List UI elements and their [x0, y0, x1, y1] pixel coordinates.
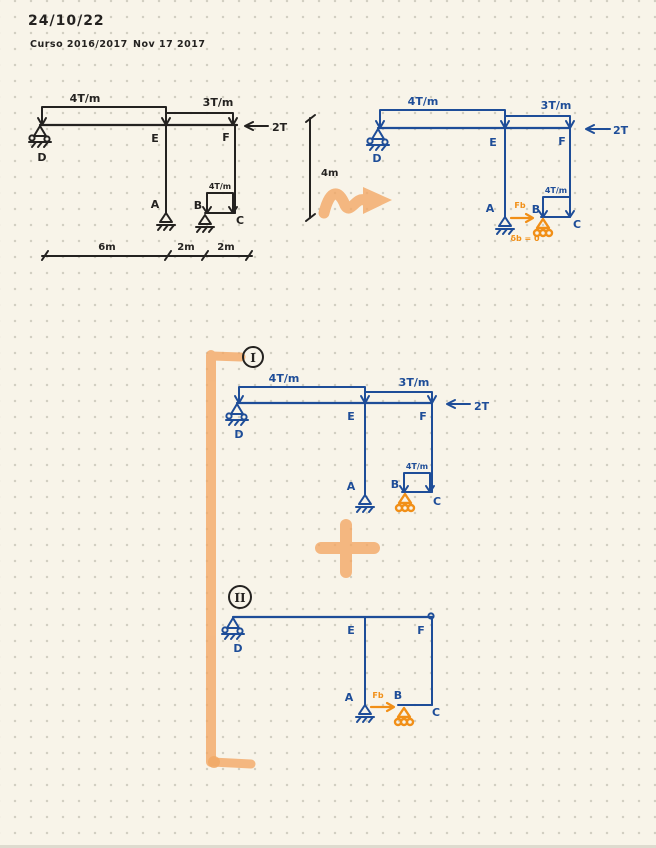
roller-support-B: [396, 494, 414, 511]
roller-support-B: [395, 708, 413, 725]
load-EF: 3T/m: [365, 376, 436, 403]
dim-label-6m: 6m: [98, 242, 115, 253]
dim-label-4m: 4m: [321, 168, 338, 179]
pin-support-D: [367, 129, 389, 150]
force-2T: 2T: [586, 124, 629, 137]
load-outline: [166, 113, 233, 124]
force-2T-label: 2T: [613, 124, 629, 137]
load-BC-label: 4T/m: [545, 186, 567, 195]
node-label-B: B: [394, 689, 402, 702]
node-label-E: E: [151, 132, 159, 145]
case1-diagram: 4T/m 3T/m 2T 4T/m D E F A B C: [226, 372, 490, 512]
original-structure-diagram: 4T/m 3T/m 2T 4T/m D E F A B C: [29, 92, 338, 260]
load-DE: 4T/m: [235, 372, 369, 403]
dim-label-2m-EB: 2m: [177, 242, 194, 253]
load-BC: 4T/m: [203, 182, 237, 213]
node-label-C: C: [236, 214, 244, 227]
load-DE: 4T/m: [38, 92, 170, 125]
load-outline: [543, 197, 570, 216]
released-structure-diagram: 4T/m 3T/m 2T 4T/m D E F A B C: [367, 95, 629, 234]
node-label-A: A: [347, 480, 356, 493]
pin-support-D: [29, 126, 51, 147]
pin-support-D: [222, 618, 244, 639]
node-label-A: A: [486, 202, 495, 215]
load-outline: [505, 116, 570, 127]
node-label-E: E: [489, 136, 497, 149]
node-label-D: D: [372, 152, 381, 165]
case2-numeral: II: [234, 591, 246, 605]
highlighter-bracket-blob: [208, 756, 220, 768]
case2-diagram: D E F A B C: [222, 613, 440, 722]
dimension-horizontal: 6m 2m 2m: [42, 242, 252, 260]
redundant-force-label: Fb: [514, 201, 525, 210]
node-label-C: C: [432, 706, 440, 719]
load-DE: 4T/m: [376, 95, 509, 128]
load-EF: 3T/m: [505, 99, 574, 128]
node-label-F: F: [222, 131, 230, 144]
highlighter-transform-arrowhead: [363, 187, 392, 214]
header: 24/10/22 Curso 2016/2017 Nov 17 2017: [28, 13, 205, 50]
case2-badge: II: [229, 586, 251, 608]
pin-support-A: [496, 217, 514, 234]
node-label-B: B: [194, 199, 202, 212]
load-DE-label: 4T/m: [269, 372, 300, 385]
node-label-D: D: [234, 428, 243, 441]
case1-numeral: I: [250, 351, 256, 365]
pin-support-A: [356, 495, 374, 512]
force-2T: 2T: [245, 121, 288, 134]
load-EF: 3T/m: [166, 96, 237, 125]
node-label-C: C: [433, 495, 441, 508]
node-label-B: B: [532, 203, 540, 216]
load-outline: [365, 392, 432, 402]
load-outline: [207, 193, 233, 212]
pin-support-D: [226, 404, 248, 425]
dim-label-2m-BC: 2m: [217, 242, 234, 253]
load-EF-label: 3T/m: [203, 96, 234, 109]
case1-badge: I: [243, 347, 263, 367]
load-outline: [404, 473, 430, 491]
sketch-canvas: 24/10/22 Curso 2016/2017 Nov 17 2017 4T/…: [0, 0, 656, 848]
node-label-B: B: [391, 478, 399, 491]
pin-support-A: [157, 213, 175, 230]
header-date: 24/10/22: [28, 13, 105, 29]
force-2T-label: 2T: [272, 121, 288, 134]
node-label-F: F: [417, 624, 425, 637]
node-label-F: F: [558, 135, 566, 148]
notebook-page: 24/10/22 Curso 2016/2017 Nov 17 2017 4T/…: [0, 0, 656, 848]
case2-orange-annotations: Fb: [371, 691, 413, 725]
load-outline: [380, 110, 505, 127]
load-BC: 4T/m: [539, 186, 574, 217]
node-label-C: C: [573, 218, 581, 231]
header-course: Curso 2016/2017: [30, 39, 128, 50]
node-label-E: E: [347, 624, 355, 637]
node-label-D: D: [37, 151, 46, 164]
highlighter-transform-arrow: [324, 194, 364, 213]
load-BC: 4T/m: [400, 462, 434, 492]
load-EF-label: 3T/m: [399, 376, 430, 389]
load-EF-label: 3T/m: [541, 99, 572, 112]
load-BC-label: 4T/m: [209, 182, 231, 191]
load-DE-label: 4T/m: [70, 92, 101, 105]
highlighter-bracket-top: [212, 356, 241, 357]
load-BC-label: 4T/m: [406, 462, 428, 471]
case1-orange-annotations: [396, 494, 414, 511]
header-note: Nov 17 2017: [133, 39, 205, 50]
redundant-force-label: Fb: [372, 691, 383, 700]
load-DE-label: 4T/m: [408, 95, 439, 108]
node-label-F: F: [419, 410, 427, 423]
node-label-E: E: [347, 410, 355, 423]
node-label-A: A: [345, 691, 354, 704]
pin-support-B: [196, 215, 214, 232]
node-label-A: A: [151, 198, 160, 211]
force-2T: 2T: [447, 400, 490, 413]
load-outline: [239, 387, 365, 402]
force-2T-label: 2T: [474, 400, 490, 413]
load-outline: [42, 107, 166, 124]
node-label-D: D: [233, 642, 242, 655]
compatibility-note: δb = 0: [510, 234, 539, 243]
